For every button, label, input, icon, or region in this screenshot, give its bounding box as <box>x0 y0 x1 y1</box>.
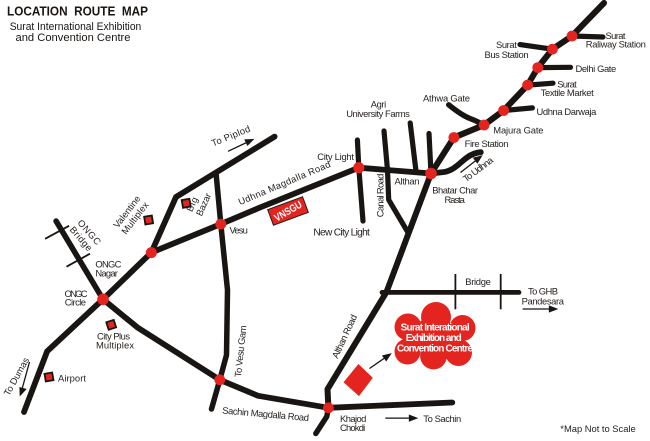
svg-text:and Convention Centre: and Convention Centre <box>16 32 131 44</box>
svg-text:New City Light: New City Light <box>313 228 370 239</box>
svg-text:Canal Road: Canal Road <box>375 174 386 218</box>
svg-text:To Sachin: To Sachin <box>423 413 461 424</box>
svg-text:Rasta: Rasta <box>445 194 466 205</box>
svg-text:*Map Not to Scale: *Map Not to Scale <box>560 423 635 434</box>
svg-text:Surat Interational: Surat Interational <box>401 323 470 334</box>
svg-text:Delhi Gate: Delhi Gate <box>576 63 617 74</box>
svg-text:Multiplex: Multiplex <box>96 340 134 351</box>
svg-text:Udhna Darwaja: Udhna Darwaja <box>537 106 598 117</box>
svg-text:Bus Station: Bus Station <box>484 49 528 60</box>
svg-text:Pandesara: Pandesara <box>522 296 565 307</box>
svg-text:Majura Gate: Majura Gate <box>493 125 543 136</box>
svg-text:Exhibition and: Exhibition and <box>406 333 462 344</box>
svg-text:Fire Station: Fire Station <box>465 138 509 149</box>
svg-text:Raliway Station: Raliway Station <box>586 38 646 49</box>
svg-text:Athwa Gate: Athwa Gate <box>423 93 470 104</box>
svg-text:Vesu: Vesu <box>230 225 248 236</box>
svg-text:Chokdi: Chokdi <box>340 422 365 433</box>
svg-text:LOCATION ROUTE MAP: LOCATION ROUTE MAP <box>7 4 148 19</box>
svg-text:Nagar: Nagar <box>95 268 118 279</box>
svg-text:Bridge: Bridge <box>465 276 491 287</box>
svg-text:Circle: Circle <box>65 297 86 308</box>
svg-text:Convention Centre: Convention Centre <box>397 344 473 355</box>
svg-text:Althan: Althan <box>395 176 420 187</box>
svg-text:University Farms: University Farms <box>346 108 410 119</box>
svg-text:Textile Market: Textile Market <box>541 87 594 98</box>
svg-text:Airport: Airport <box>58 373 86 384</box>
